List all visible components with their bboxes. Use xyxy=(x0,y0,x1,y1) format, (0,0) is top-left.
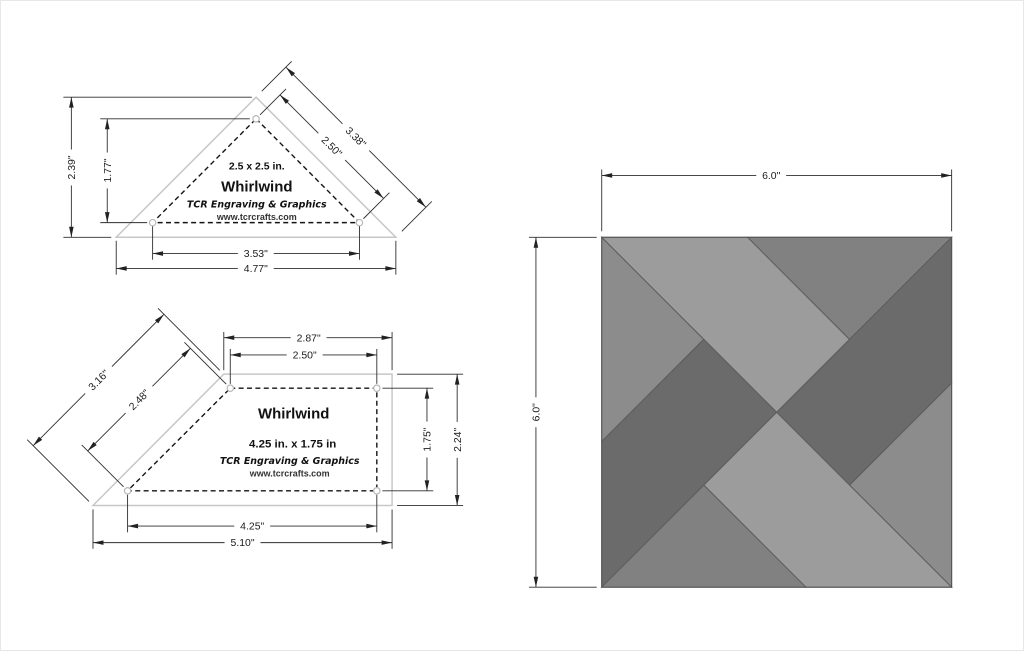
dim-label: 2.24" xyxy=(453,428,464,452)
dim-trapezoid-inner-right: 1.75" xyxy=(382,388,433,491)
corner-hole xyxy=(227,385,233,391)
trapezoid-name-label: Whirlwind xyxy=(258,406,329,423)
dim-block-width: 6.0" xyxy=(602,169,952,231)
whirlwind-template-diagram: 2.39" 1.77" 3.38" xyxy=(0,0,1024,651)
dim-label: 1.75" xyxy=(423,427,434,451)
trapezoid-website-label: www.tcrcrafts.com xyxy=(249,469,330,479)
dim-label: 3.53" xyxy=(244,249,268,260)
dim-triangle-inner-base: 3.53" xyxy=(153,226,360,260)
corner-hole xyxy=(374,488,380,494)
dim-label: 1.77" xyxy=(103,158,114,182)
triangle-name-label: Whirlwind xyxy=(221,178,292,195)
triangle-size-label: 2.5 x 2.5 in. xyxy=(229,161,285,172)
dim-trapezoid-outer-slant: 3.16" xyxy=(27,308,220,501)
dim-label: 6.0" xyxy=(762,171,781,182)
corner-hole xyxy=(124,488,130,494)
dim-block-height: 6.0" xyxy=(529,237,597,587)
dim-label: 6.0" xyxy=(532,403,543,422)
dim-label: 2.50" xyxy=(293,350,317,361)
trapezoid-template-drawing: 2.87" 2.50" 3.16" xyxy=(27,308,464,549)
dim-label: 2.87" xyxy=(297,333,321,344)
trapezoid-size-label: 4.25 in. x 1.75 in xyxy=(249,439,336,451)
corner-hole xyxy=(356,219,362,225)
dim-trapezoid-inner-bottom: 4.25" xyxy=(128,495,377,533)
dim-label: 4.77" xyxy=(244,264,268,275)
corner-hole xyxy=(149,219,155,225)
dim-label: 4.25" xyxy=(240,522,264,533)
triangle-brand-label: TCR Engraving & Graphics xyxy=(187,199,327,210)
block-preview: 6.0" 6.0" xyxy=(529,169,952,587)
dim-trapezoid-inner-top: 2.50" xyxy=(230,348,377,383)
corner-hole xyxy=(374,385,380,391)
dim-label: 5.10" xyxy=(230,538,254,549)
dim-label: 2.39" xyxy=(67,155,78,179)
diagram-canvas: 2.39" 1.77" 3.38" xyxy=(1,1,1023,650)
corner-hole xyxy=(253,116,259,122)
trapezoid-brand-label: TCR Engraving & Graphics xyxy=(220,456,360,467)
triangle-website-label: www.tcrcrafts.com xyxy=(216,212,297,222)
triangle-template-drawing: 2.39" 1.77" 3.38" xyxy=(63,61,431,275)
